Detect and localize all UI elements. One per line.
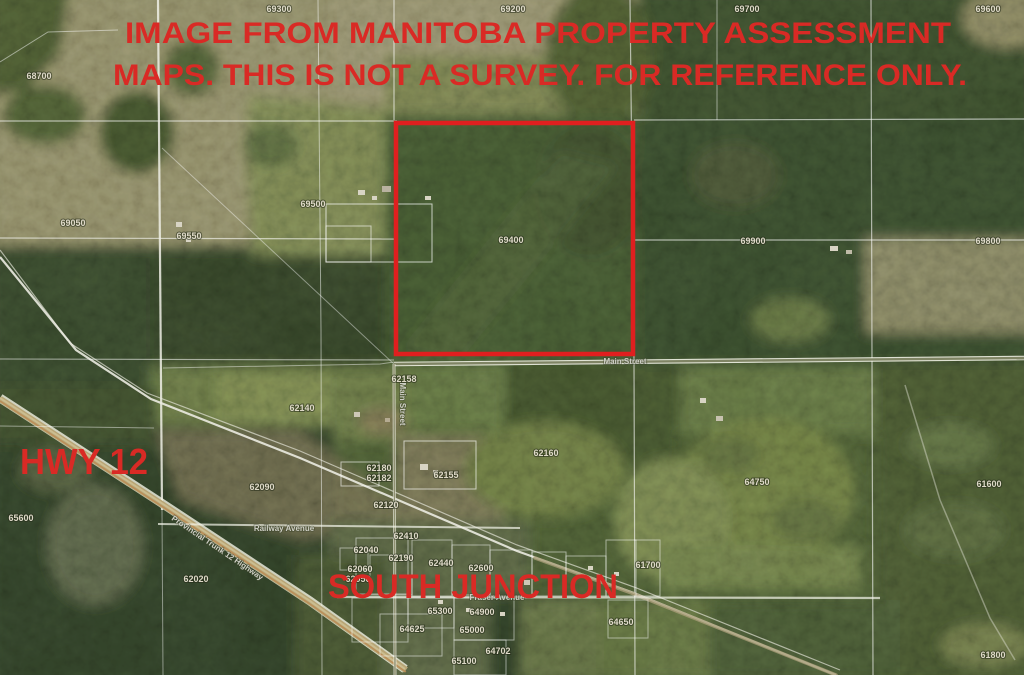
svg-text:69700: 69700 [734,4,759,14]
svg-text:69550: 69550 [176,231,201,241]
svg-text:64750: 64750 [744,477,769,487]
svg-text:68700: 68700 [26,71,51,81]
svg-text:65100: 65100 [451,656,476,666]
svg-text:69800: 69800 [975,236,1000,246]
svg-text:64625: 64625 [399,624,424,634]
svg-text:69600: 69600 [975,4,1000,14]
svg-text:62090: 62090 [249,482,274,492]
svg-text:64650: 64650 [608,617,633,627]
svg-text:69200: 69200 [500,4,525,14]
svg-text:69900: 69900 [740,236,765,246]
svg-text:65300: 65300 [427,606,452,616]
svg-text:Main Street: Main Street [603,357,646,366]
svg-text:62182: 62182 [366,473,391,483]
svg-text:IMAGE FROM MANITOBA PROPERTY A: IMAGE FROM MANITOBA PROPERTY ASSESSMENT [125,17,951,50]
svg-text:61800: 61800 [980,650,1005,660]
svg-text:HWY 12: HWY 12 [20,441,148,482]
svg-text:SOUTH JUNCTION: SOUTH JUNCTION [328,568,618,606]
svg-text:Main Street: Main Street [398,382,407,425]
svg-text:64900: 64900 [469,607,494,617]
svg-text:62040: 62040 [353,545,378,555]
svg-text:62140: 62140 [289,403,314,413]
svg-text:69050: 69050 [60,218,85,228]
svg-text:61600: 61600 [976,479,1001,489]
svg-text:65000: 65000 [459,625,484,635]
svg-text:69500: 69500 [300,199,325,209]
svg-text:MAPS. THIS IS NOT A SURVEY. FO: MAPS. THIS IS NOT A SURVEY. FOR REFERENC… [113,59,967,92]
svg-text:61700: 61700 [635,560,660,570]
svg-text:62020: 62020 [183,574,208,584]
svg-text:62190: 62190 [388,553,413,563]
svg-text:62155: 62155 [433,470,458,480]
svg-text:69400: 69400 [498,235,523,245]
svg-text:65600: 65600 [8,513,33,523]
svg-text:62410: 62410 [393,531,418,541]
svg-text:69300: 69300 [266,4,291,14]
svg-text:62160: 62160 [533,448,558,458]
svg-text:Railway Avenue: Railway Avenue [254,524,315,533]
svg-text:62120: 62120 [373,500,398,510]
svg-text:62180: 62180 [366,463,391,473]
svg-text:62440: 62440 [428,558,453,568]
svg-text:64702: 64702 [485,646,510,656]
